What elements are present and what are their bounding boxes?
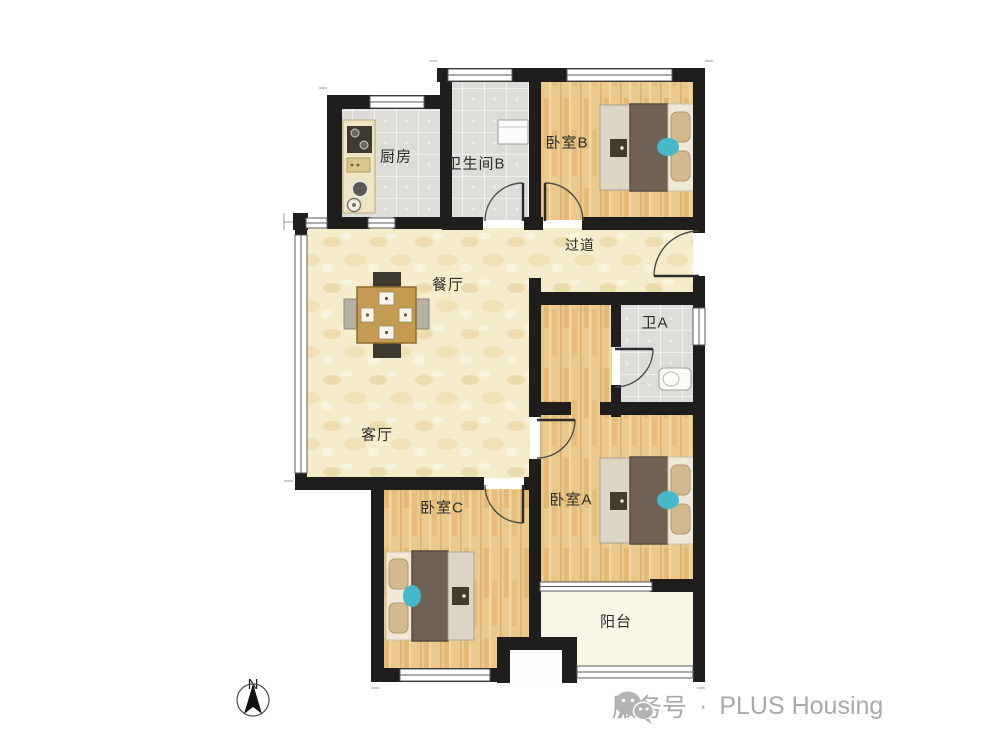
window-kitchen-north xyxy=(370,96,424,108)
window-bathroom-a-east xyxy=(693,308,705,345)
room-label-bedroom-c: 卧室C xyxy=(420,497,464,518)
floorplan-drawing xyxy=(0,0,1000,750)
bed-bedroom-c xyxy=(386,551,474,641)
compass: N xyxy=(227,678,279,740)
window-bathroom-b-north xyxy=(448,69,512,81)
footer-separator: · xyxy=(699,692,707,721)
window-balcony-slider xyxy=(540,582,652,591)
room-label-living: 客厅 xyxy=(361,424,393,445)
room-label-kitchen: 厨房 xyxy=(380,146,412,167)
window-balcony-south xyxy=(577,666,693,678)
footer-brand: PLUS Housing xyxy=(719,692,883,721)
toilet xyxy=(659,368,691,390)
window-living-west xyxy=(295,235,307,473)
room-label-bedroom-a: 卧室A xyxy=(549,489,592,510)
room-label-bathroom-b: 卫生间B xyxy=(446,153,505,174)
window-kitchen-hatch xyxy=(368,218,395,228)
shaft-void xyxy=(510,650,562,683)
window-living-northwest xyxy=(306,218,327,228)
footer-watermark: 服务号 · PLUS Housing xyxy=(612,688,883,724)
room-label-hallway: 过道 xyxy=(565,235,595,255)
compass-icon xyxy=(227,678,279,724)
bed-bedroom-b xyxy=(600,104,694,191)
floorplan-canvas: 厨房 卫生间B 卧室B 过道 餐厅 卫A 客厅 卧室C 卧室A 阳台 N 服务号… xyxy=(0,0,1000,750)
wechat-icon xyxy=(612,688,656,726)
room-label-bathroom-a: 卫A xyxy=(641,312,668,333)
bed-bedroom-a xyxy=(600,457,694,544)
room-label-balcony: 阳台 xyxy=(600,611,632,632)
room-label-dining: 餐厅 xyxy=(432,274,464,295)
window-bedroom-c-south xyxy=(400,669,490,681)
kitchen-counter xyxy=(343,120,375,213)
washing-machine xyxy=(498,120,528,144)
room-label-bedroom-b: 卧室B xyxy=(545,132,588,153)
window-bedroom-b-north xyxy=(567,69,672,81)
